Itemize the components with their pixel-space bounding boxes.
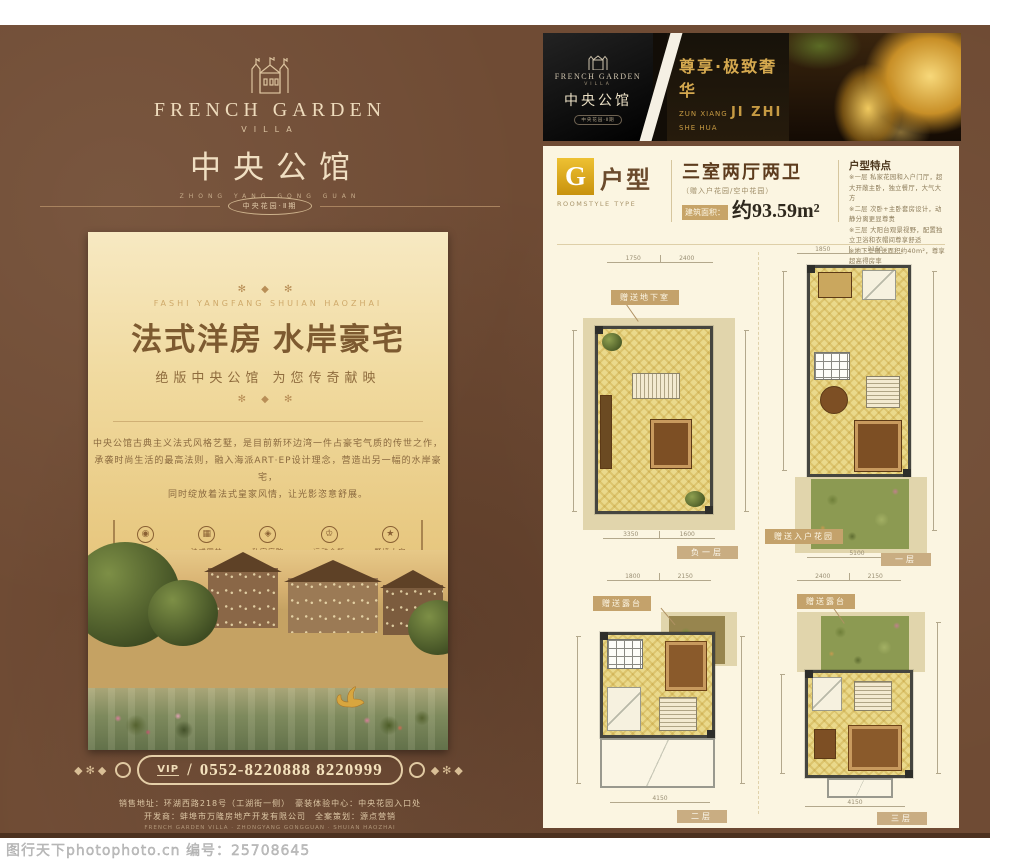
castle-logo-icon <box>244 49 296 95</box>
bay-window <box>607 639 643 669</box>
flower-bed <box>94 700 214 746</box>
golden-swan-sculpture <box>336 682 370 712</box>
banner-phase-badge: 中央花园·Ⅱ期 <box>574 115 621 125</box>
bathroom <box>607 687 641 731</box>
banner-slogan: 尊享·极致奢华 ZUN XIANG JI ZHI SHE HUA <box>667 33 789 141</box>
dimension-line <box>745 330 746 512</box>
floorplan-third-floor: 2400 2150 赠送露台 4150 三层 <box>765 574 950 824</box>
floor-label-third: 三层 <box>877 812 927 825</box>
bed <box>665 641 707 691</box>
gift-entry-garden-tag: 赠送入户花园 <box>765 529 843 544</box>
living-room-rug <box>854 420 902 472</box>
hotline-box: VIP / 0552-8220888 8220999 <box>137 755 402 785</box>
paragraph-line: 同时绽放着法式皇家风情，让光影恣意舒展。 <box>88 487 448 504</box>
plans-center-divider <box>758 252 759 814</box>
dimension-label: 1600 <box>660 531 716 538</box>
landscape-photo <box>88 550 448 750</box>
poster-subtitle: 绝版中央公馆 为您传奇献映 <box>88 367 448 386</box>
bed <box>848 725 902 771</box>
unit-page-panel: G 户型 ROOMSTYLE TYPE 三室两厅两卫 （赠入户花园/空中花园） … <box>543 146 959 828</box>
brand-name-cn: 中央公馆 <box>0 142 540 187</box>
roof-terrace-garden <box>821 616 909 670</box>
wall-pier <box>705 506 713 514</box>
brand-name-en: FRENCH GARDEN <box>0 99 540 122</box>
plant <box>685 491 705 507</box>
dimension-label: 1750 <box>607 255 661 262</box>
slogan-cn: 尊享·极致奢华 <box>679 53 789 101</box>
wall-pier <box>805 670 813 678</box>
brand-villa: VILLA <box>0 125 540 134</box>
private-court-medallion-icon: ◈ <box>259 526 276 543</box>
stairs <box>632 373 680 399</box>
wardrobe <box>600 395 612 469</box>
banner-logo-block: FRENCH GARDEN VILLA 中央公馆 中央花园·Ⅱ期 <box>543 33 653 141</box>
tree <box>148 580 218 646</box>
gift-terrace-tag: 赠送露台 <box>593 596 651 611</box>
floorplan-basement: 1750 2400 赠送地下室 3350 1600 负一层 <box>565 250 755 555</box>
dimension-label: 4150 <box>610 795 710 802</box>
rooms-title: 三室两厅两卫 <box>682 158 828 184</box>
feature-line: ※二层 次卧+主卧套房设计，动静分离更显尊贵 <box>849 205 947 226</box>
villa-roof <box>380 570 446 588</box>
kitchen <box>818 272 852 298</box>
top-banner: FRENCH GARDEN VILLA 中央公馆 中央花园·Ⅱ期 尊享·极致奢华… <box>543 33 961 141</box>
hotline-ribbon: ◆✻◆ VIP / 0552-8220888 8220999 ◆✻◆ <box>0 755 540 785</box>
footer-developer-line: 开发商：蚌埠市万隆房地产开发有限公司 全案策划：源点营销 <box>20 810 520 823</box>
stairs <box>854 681 892 711</box>
poster-paragraph: 中央公馆古典主义法式风格艺墅，是目前新环边湾一件占豪宅气质的传世之作， 承袭时尚… <box>88 436 448 504</box>
divider-line <box>320 206 500 207</box>
banner-brand-en: FRENCH GARDEN <box>555 72 641 81</box>
dimension-label: 2150 <box>660 573 712 580</box>
banner-brand-cn: 中央公馆 <box>564 90 632 110</box>
ornament-left: ◆✻◆ <box>74 764 109 777</box>
vip-label: VIP <box>157 764 179 776</box>
wall-pier <box>600 632 608 640</box>
gift-terrace-tag: 赠送露台 <box>797 594 855 609</box>
dimension-label: 2150 <box>850 573 902 580</box>
ornament-top: ✻ ◆ ✻ <box>88 284 448 295</box>
villa-building <box>208 568 278 628</box>
city-center-medallion-icon: ◉ <box>137 526 154 543</box>
bathroom <box>862 270 896 300</box>
stairs <box>659 697 697 731</box>
french-garden-medallion-icon: ▦ <box>198 526 215 543</box>
table <box>650 419 692 469</box>
dimension-label: 3350 <box>603 531 660 538</box>
dimension-line <box>577 636 578 784</box>
header-divider <box>671 160 672 222</box>
poster: ✻ ◆ ✻ FASHI YANGFANG SHUIAN HAOZHAI 法式洋房… <box>88 232 448 750</box>
phase-badge-row: 中央花园·Ⅱ期 <box>40 197 500 215</box>
balcony <box>827 778 893 798</box>
floor-label-first: 一层 <box>881 553 931 566</box>
desk <box>814 729 836 759</box>
dimension-line <box>783 271 784 471</box>
dimension-label: 2400 <box>661 255 714 262</box>
brochure-canvas: FRENCH GARDEN VILLA 中央公馆 ZHONG YANG GONG… <box>0 25 990 838</box>
header-divider <box>838 160 839 222</box>
first-floor-plan-walls <box>807 265 911 477</box>
bathroom <box>812 677 842 711</box>
slogan-py-big: JI ZHI <box>731 105 782 120</box>
floorplan-second-floor: 1800 2150 赠送露台 4150 二层 <box>565 574 755 824</box>
bay-window <box>814 352 850 380</box>
third-floor-plan-walls <box>805 670 913 778</box>
features-title: 户型特点 <box>849 158 947 173</box>
feature-line: ※一层 私家花园和入户门厅，超大开敞主卧，独立餐厅，大气大方 <box>849 173 947 205</box>
flyer-footer: 销售地址：环湖西路218号（工湖街一侧） 豪装体验中心：中央花园入口处 开发商：… <box>20 797 520 831</box>
wall-pier <box>903 469 911 477</box>
dimension-label: 1850 <box>797 246 850 253</box>
second-floor-plan-walls <box>600 632 715 738</box>
wall-pier <box>807 265 815 273</box>
floorplan-first-floor: 1850 2150 赠送入户花园 5100 一层 <box>765 245 950 565</box>
poster-pinyin: FASHI YANGFANG SHUIAN HAOZHAI <box>88 299 448 308</box>
unit-type-sub: ROOMSTYLE TYPE <box>557 200 661 208</box>
dimension-label: 2400 <box>797 573 850 580</box>
ornament-circle-icon <box>115 762 131 778</box>
dimension-label: 2150 <box>850 246 902 253</box>
gift-basement-tag: 赠送地下室 <box>611 290 679 305</box>
mansion-medallion-icon: ★ <box>382 526 399 543</box>
wall-pier <box>707 730 715 738</box>
slogan-pinyin-2: SHE HUA <box>679 124 789 132</box>
chandelier-photo <box>789 33 961 141</box>
villa-building <box>288 578 378 633</box>
divider-line <box>40 206 220 207</box>
ornament-bottom: ✻ ◆ ✻ <box>88 394 448 405</box>
castle-logo-icon <box>585 50 611 70</box>
poster-title: 法式洋房 水岸豪宅 <box>88 314 448 359</box>
hotline-number: 0552-8220888 8220999 <box>200 760 383 780</box>
dimension-line <box>573 330 574 512</box>
ornament-right: ◆✻◆ <box>431 764 466 777</box>
club-medallion-icon: ♔ <box>321 526 338 543</box>
slogan-pinyin: ZUN XIANG JI ZHI <box>679 105 789 120</box>
dimension-label: 4150 <box>805 799 905 806</box>
wall-pier <box>905 770 913 778</box>
wall-pier <box>595 326 603 334</box>
rooms-sub: （赠入户花园/空中花园） <box>682 186 828 196</box>
footer-address-line: 销售地址：环湖西路218号（工湖街一侧） 豪装体验中心：中央花园入口处 <box>20 797 520 810</box>
phase-badge: 中央花园·Ⅱ期 <box>228 197 313 215</box>
unit-type-letter-badge: G <box>557 158 594 195</box>
dimension-line <box>933 271 934 531</box>
poster-divider <box>113 421 423 422</box>
stock-site-watermark: 图行天下photophoto.cn 编号：25708645 <box>6 840 310 860</box>
floor-label-second: 二层 <box>677 810 727 823</box>
left-brand-block: FRENCH GARDEN VILLA 中央公馆 ZHONG YANG GONG… <box>0 49 540 200</box>
villa-roof <box>284 560 382 582</box>
villa-roof <box>204 552 282 572</box>
stairs <box>866 376 900 408</box>
floor-label-basement: 负一层 <box>677 546 738 559</box>
footer-small-line: FRENCH GARDEN VILLA · ZHONGYANG GONGGUAN… <box>20 825 520 831</box>
unit-type-label: 户型 <box>600 160 652 195</box>
paragraph-line: 承袭时尚生活的最高法则，融入海派ART·EP设计理念，营造出另一幅的水岸豪宅， <box>88 453 448 487</box>
plant <box>602 333 622 351</box>
dimension-label: 1800 <box>607 573 660 580</box>
slogan-py-small: ZUN XIANG <box>679 110 728 118</box>
dimension-line <box>781 674 782 774</box>
hotline-separator: / <box>187 762 192 778</box>
dimension-line <box>937 622 938 774</box>
area-label: 建筑面积： <box>682 205 728 220</box>
banner-brand-villa: VILLA <box>584 82 612 87</box>
dining-table <box>820 386 848 414</box>
area-value: 约93.59m² <box>732 202 820 220</box>
terrace <box>600 738 715 788</box>
ornament-circle-icon <box>409 762 425 778</box>
basement-plan-walls <box>595 326 713 514</box>
dimension-line <box>741 636 742 784</box>
paragraph-line: 中央公馆古典主义法式风格艺墅，是目前新环边湾一件占豪宅气质的传世之作， <box>88 436 448 453</box>
